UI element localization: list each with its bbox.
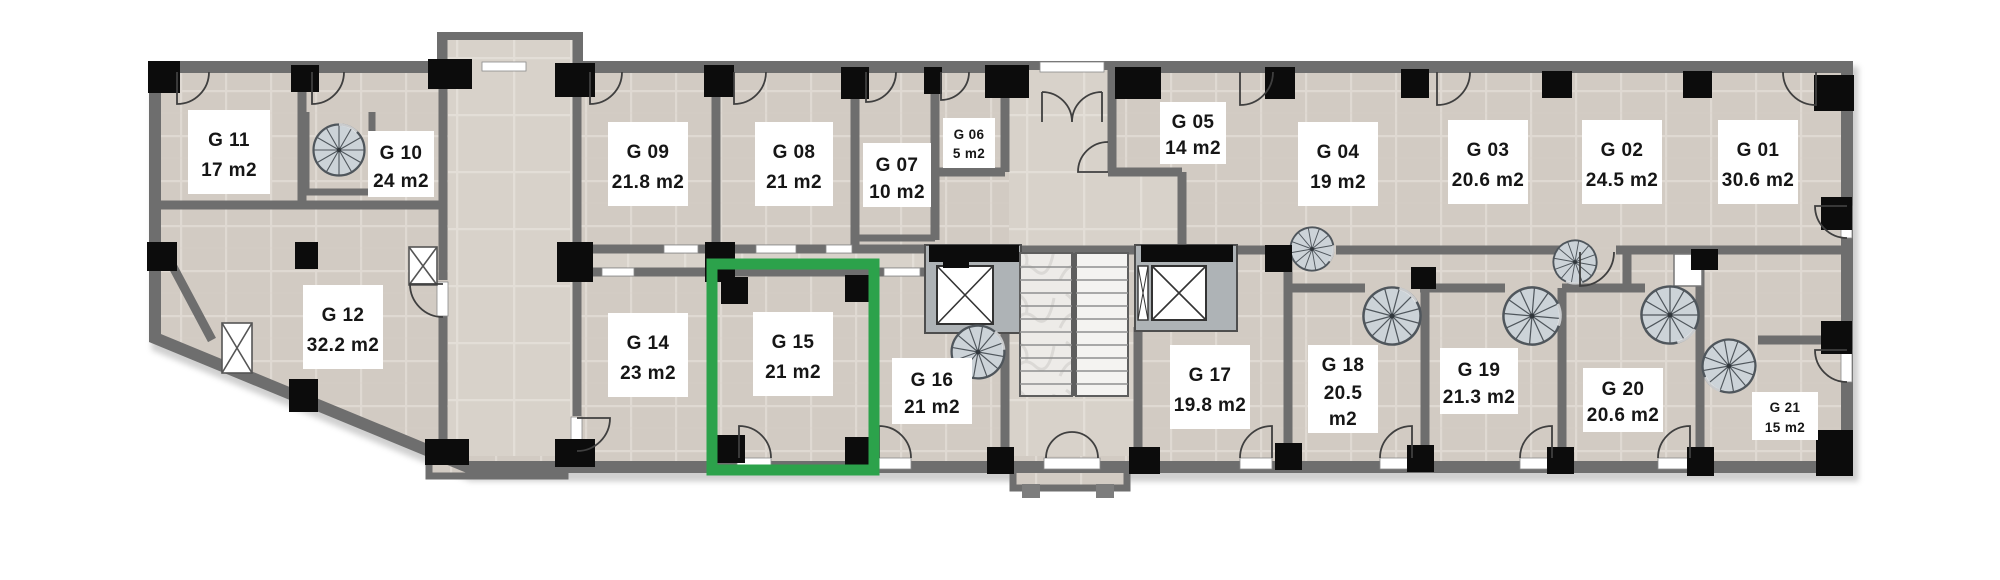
- column: [1683, 71, 1712, 98]
- column: [555, 439, 595, 467]
- column: [147, 242, 177, 271]
- column: [1821, 321, 1852, 354]
- room-area: 19.8 m2: [1174, 395, 1247, 416]
- column: [1265, 67, 1295, 99]
- room-area: 17 m2: [201, 160, 257, 181]
- room-area: 21.3 m2: [1443, 387, 1516, 408]
- room-label-g01[interactable]: G 01 30.6 m2: [1718, 120, 1798, 204]
- room-label-g17[interactable]: G 17 19.8 m2: [1170, 345, 1250, 429]
- column: [717, 435, 745, 463]
- room-name: G 08: [773, 142, 816, 163]
- room-label-g20[interactable]: G 20 20.6 m2: [1583, 368, 1663, 432]
- column: [987, 447, 1014, 474]
- room-label-g10[interactable]: G 10 24 m2: [368, 131, 434, 197]
- room-area: 32.2 m2: [307, 335, 380, 356]
- room-name: G 02: [1601, 140, 1644, 161]
- room-name: G 09: [627, 142, 670, 163]
- room-area: 21 m2: [766, 172, 822, 193]
- room-label-g08[interactable]: G 08 21 m2: [755, 122, 833, 206]
- room-area: 19 m2: [1310, 172, 1366, 193]
- room-name: G 15: [772, 332, 815, 353]
- room-label-g04[interactable]: G 04 19 m2: [1298, 122, 1378, 206]
- room-label-bg: [753, 312, 833, 396]
- room-name: G 18: [1322, 355, 1365, 376]
- room-area: 23 m2: [620, 363, 676, 384]
- column: [289, 379, 318, 412]
- duct-icon: [409, 247, 437, 285]
- room-label-g16[interactable]: G 16 21 m2: [892, 358, 972, 424]
- column: [1411, 267, 1436, 289]
- column: [924, 67, 942, 94]
- room-label-g21[interactable]: G 21 15 m2: [1752, 392, 1818, 440]
- column: [985, 65, 1029, 98]
- column: [704, 65, 734, 97]
- door-opening: [1044, 458, 1100, 469]
- window-opening: [482, 62, 526, 71]
- window-opening: [884, 268, 920, 276]
- central-staircase: [1020, 253, 1128, 396]
- room-name: G 06: [954, 127, 985, 142]
- room-label-bg: [1718, 120, 1798, 204]
- column: [1687, 447, 1714, 476]
- room-label-g15[interactable]: G 15 21 m2: [753, 312, 833, 396]
- column: [1401, 69, 1429, 98]
- column: [291, 65, 319, 92]
- column: [1265, 245, 1292, 272]
- column: [1275, 443, 1302, 470]
- door-opening: [437, 282, 448, 316]
- room-label-g05[interactable]: G 05 14 m2: [1160, 102, 1226, 164]
- door-opening: [1658, 458, 1690, 469]
- porch-step: [1096, 484, 1114, 498]
- room-name: G 14: [627, 333, 670, 354]
- room-area: 20.6 m2: [1587, 405, 1660, 426]
- room-name: G 11: [208, 130, 250, 151]
- door-opening: [1240, 458, 1272, 469]
- room-label-g07[interactable]: G 07 10 m2: [863, 143, 931, 207]
- room-label-g09[interactable]: G 09 21.8 m2: [608, 122, 688, 206]
- duct-icon: [222, 323, 252, 373]
- room-label-g19[interactable]: G 19 21.3 m2: [1440, 348, 1518, 414]
- room-name: G 03: [1467, 140, 1510, 161]
- floor-plan-canvas: G 01 30.6 m2 G 02 24.5 m2 G 03 20.6 m2 G…: [0, 0, 2000, 580]
- column: [425, 439, 469, 465]
- column: [428, 59, 472, 89]
- column: [845, 275, 870, 302]
- room-name: G 16: [911, 370, 954, 391]
- column: [1547, 447, 1574, 474]
- column: [841, 67, 869, 99]
- room-label-bg: [608, 122, 688, 206]
- floor-plan-page: G 01 30.6 m2 G 02 24.5 m2 G 03 20.6 m2 G…: [0, 0, 2000, 580]
- room-label-g12[interactable]: G 12 32.2 m2: [303, 285, 383, 369]
- room-label-bg: [188, 110, 270, 194]
- column: [1407, 445, 1434, 472]
- room-name: G 04: [1317, 142, 1360, 163]
- window-opening: [826, 245, 852, 253]
- room-label-g18[interactable]: G 18 20.5 m2: [1308, 345, 1378, 433]
- elevator-icon: [1135, 245, 1237, 331]
- room-name: G 05: [1172, 112, 1215, 133]
- elevator-icon: [925, 245, 1021, 333]
- room-area: 24.5 m2: [1586, 170, 1659, 191]
- room-label-bg: [1448, 120, 1528, 204]
- column: [1115, 67, 1161, 99]
- window-opening: [602, 268, 634, 276]
- room-label-g11[interactable]: G 11 17 m2: [188, 110, 270, 194]
- column: [1542, 71, 1572, 98]
- porch-step: [1022, 484, 1040, 498]
- room-label-bg: [755, 122, 833, 206]
- room-label-bg: [608, 313, 688, 397]
- window-opening: [756, 245, 796, 253]
- column: [943, 251, 969, 268]
- room-name: G 17: [1189, 365, 1232, 386]
- room-area: 15 m2: [1765, 420, 1805, 435]
- room-area-unit: m2: [1329, 409, 1357, 430]
- room-area: 21 m2: [765, 362, 821, 383]
- door-opening: [1040, 62, 1104, 72]
- stair-flight-right: [1076, 253, 1128, 396]
- room-area: 5 m2: [953, 146, 985, 161]
- column: [1814, 75, 1854, 111]
- room-area: 21.8 m2: [612, 172, 685, 193]
- room-area: 14 m2: [1165, 138, 1221, 159]
- column: [1821, 197, 1852, 230]
- column: [557, 242, 593, 282]
- room-label-g06[interactable]: G 06 5 m2: [943, 118, 995, 168]
- room-label-g03[interactable]: G 03 20.6 m2: [1448, 120, 1528, 204]
- room-name: G 07: [876, 155, 919, 176]
- door-opening: [877, 458, 911, 469]
- column: [1129, 447, 1160, 474]
- room-area: 21 m2: [904, 397, 960, 418]
- room-label-bg: [1582, 120, 1662, 204]
- room-name: G 10: [380, 143, 423, 164]
- column: [1816, 430, 1853, 476]
- room-area: 24 m2: [373, 171, 429, 192]
- room-area: 20.5: [1324, 383, 1363, 404]
- window-opening: [664, 245, 698, 253]
- room-area: 10 m2: [869, 182, 925, 203]
- column: [295, 242, 318, 269]
- room-area: 30.6 m2: [1722, 170, 1795, 191]
- room-label-bg: [1170, 345, 1250, 429]
- room-label-bg: [1298, 122, 1378, 206]
- room-name: G 20: [1602, 379, 1645, 400]
- column: [721, 277, 748, 304]
- room-name: G 12: [322, 305, 365, 326]
- room-name: G 01: [1737, 140, 1780, 161]
- room-label-bg: [303, 285, 383, 369]
- room-label-g14[interactable]: G 14 23 m2: [608, 313, 688, 397]
- room-name: G 21: [1770, 400, 1801, 415]
- stair-flight-left: [1020, 253, 1072, 396]
- column: [1691, 249, 1718, 270]
- door-opening: [1841, 350, 1852, 382]
- room-label-g02[interactable]: G 02 24.5 m2: [1582, 120, 1662, 204]
- column: [555, 63, 595, 97]
- spiral-staircase-icon: [314, 125, 365, 176]
- room-name: G 19: [1458, 360, 1501, 381]
- column: [148, 61, 180, 93]
- room-area: 20.6 m2: [1452, 170, 1525, 191]
